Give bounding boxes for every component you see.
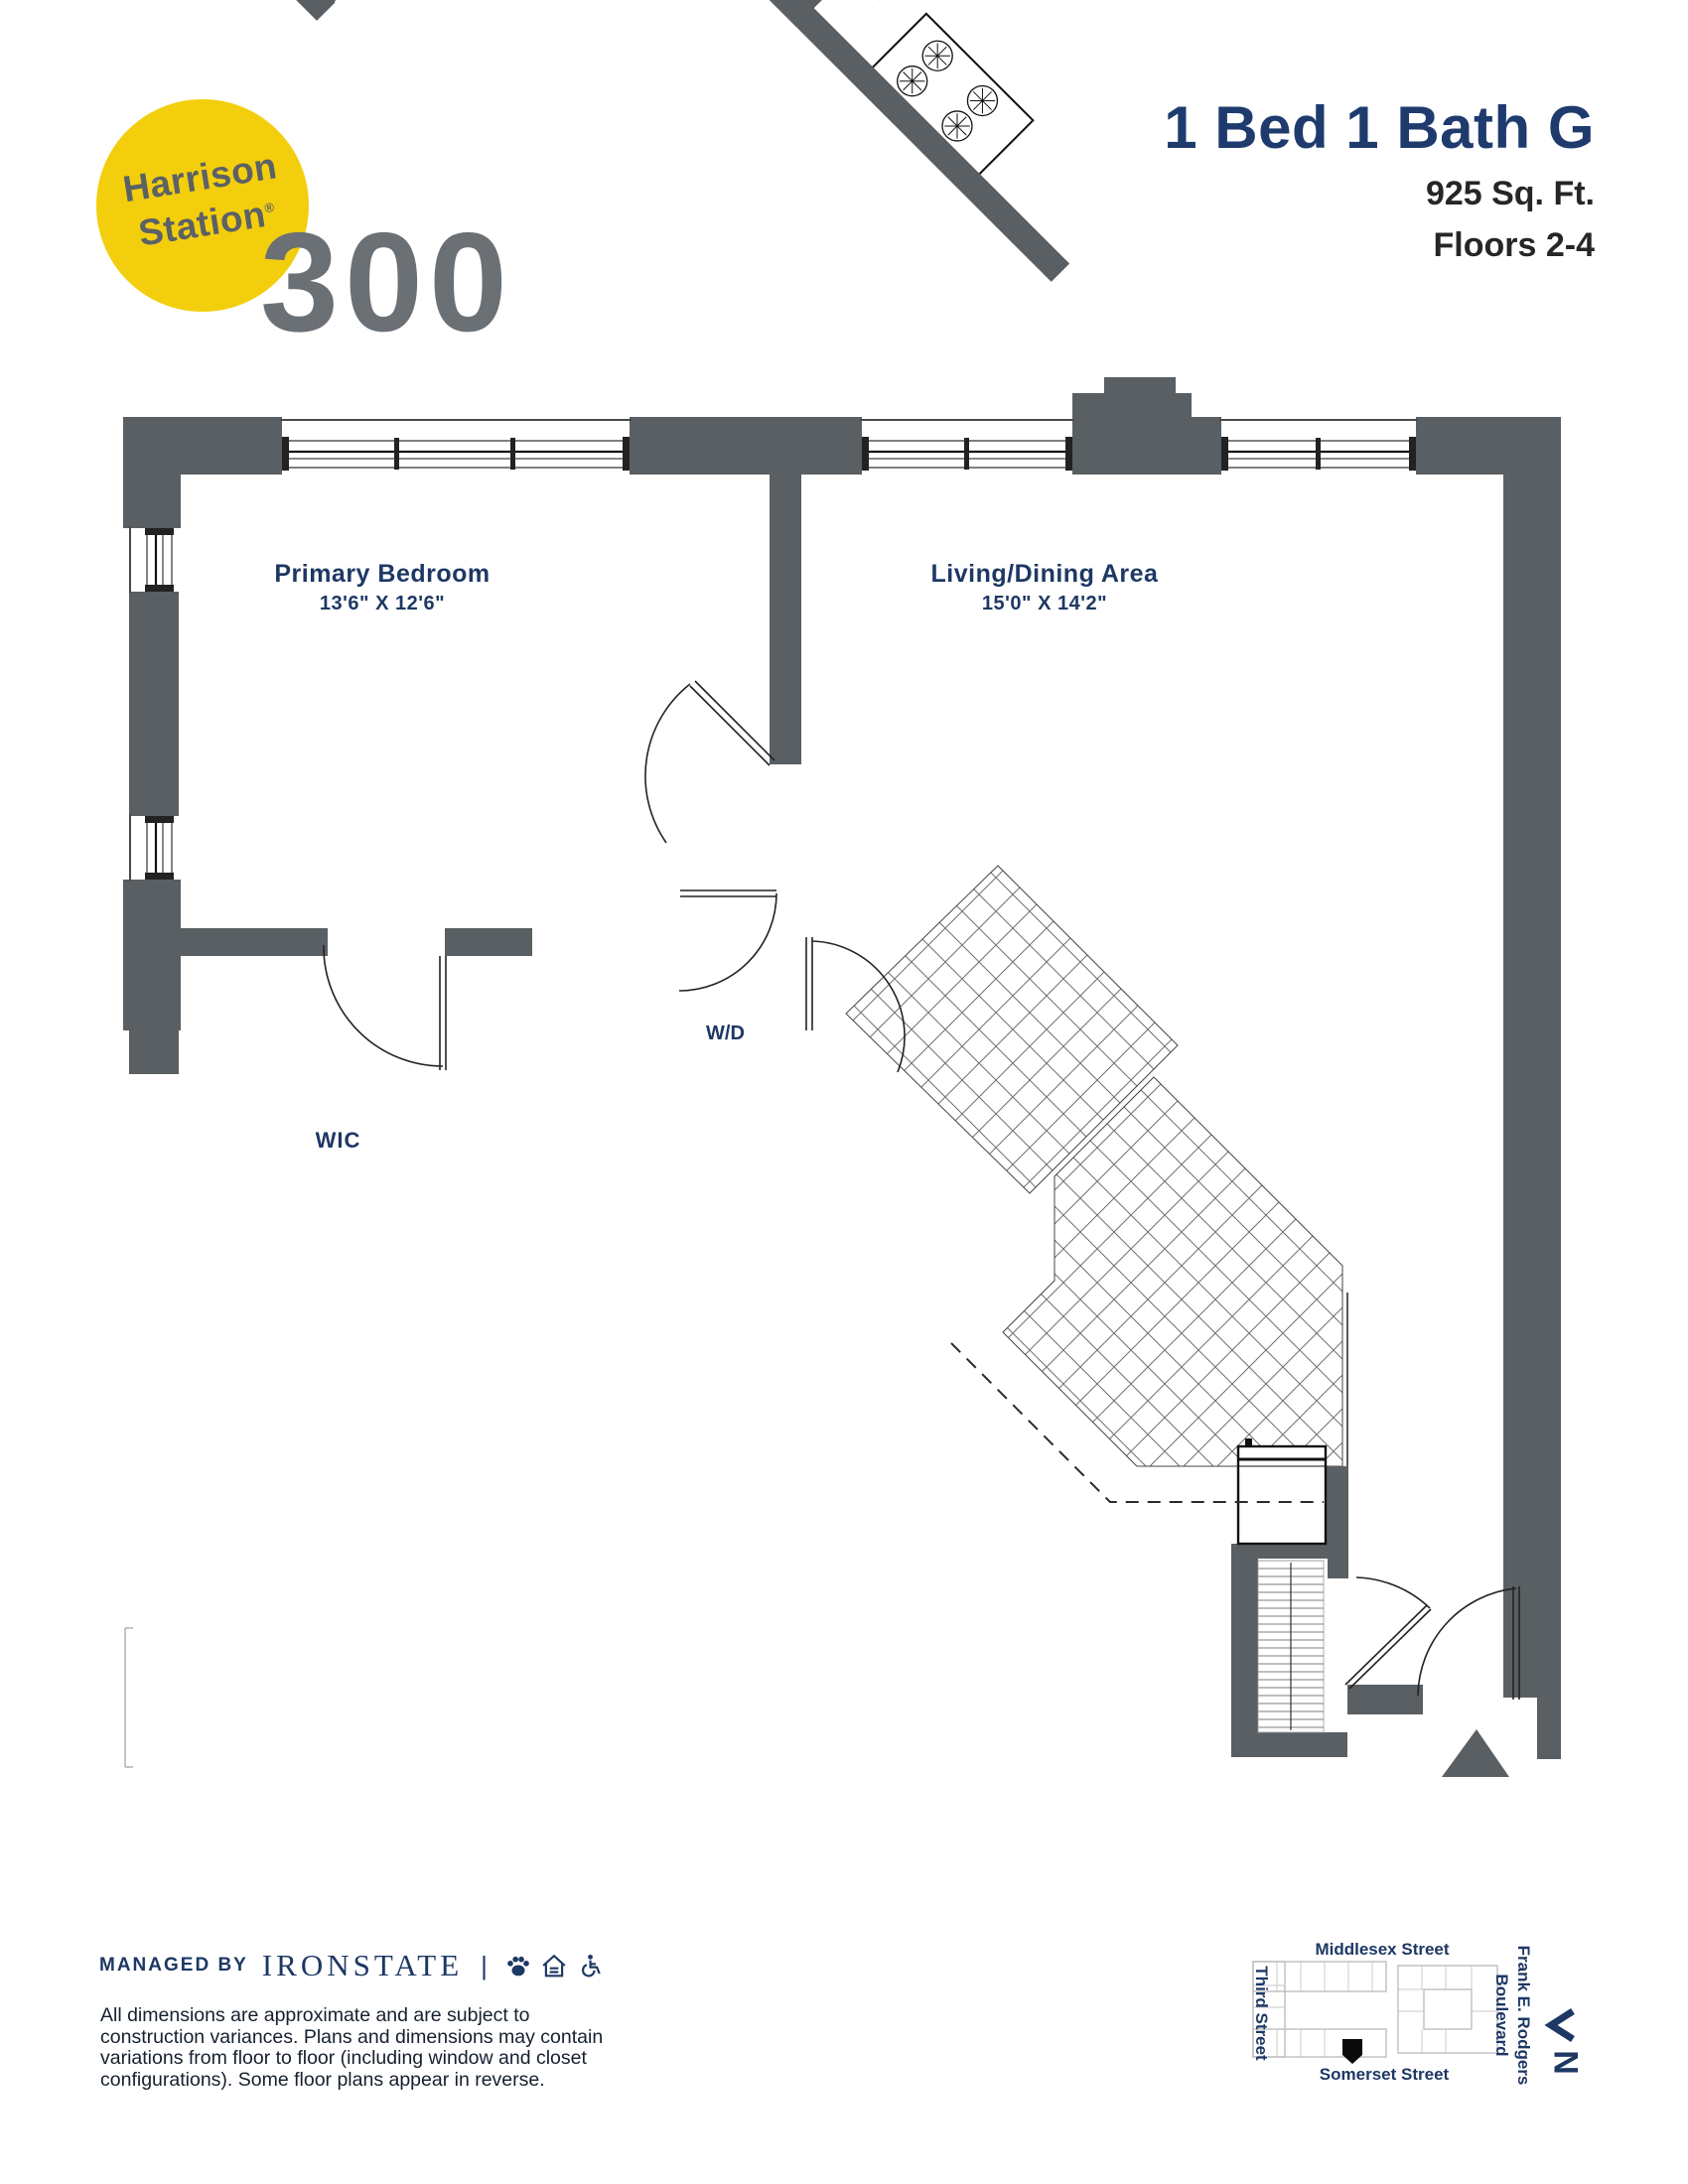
unit-title: 1 Bed 1 Bath G [999,93,1595,162]
refrigerator [1238,1438,1326,1544]
coat-closet-door [1345,1577,1431,1689]
paw-icon [505,1953,531,1979]
footer-divider: | [477,1951,492,1981]
tub-sw-wall [608,0,868,27]
entry-marker-triangle [1442,1729,1509,1777]
wd-label: W/D [683,1023,768,1045]
bedroom-dimensions: 13'6" X 12'6" [184,593,581,615]
logo-building-number: 300 [260,212,513,353]
managed-by-text: MANAGED BY [99,1955,248,1977]
company-name: IRONSTATE [262,1948,463,1983]
map-location-pin [1342,2039,1362,2064]
wic-label: WIC [296,1128,380,1154]
disclaimer-line1: All dimensions are approximate and are s… [100,2005,736,2027]
accessibility-icon [577,1953,603,1979]
living-label: Living/Dining Area [846,560,1243,589]
bedroom-door [645,681,774,843]
top-wall-notch [1072,393,1192,419]
north-arrow-icon [1551,2011,1573,2039]
street-third: Third Street [1251,1934,1271,2093]
floor-plan-drawing [0,0,1688,2184]
unit-floors: Floors 2-4 [999,226,1595,265]
unit-area: 925 Sq. Ft. [999,175,1595,213]
bedroom-living-wall [770,475,801,764]
equal-housing-icon [541,1953,567,1979]
bedroom-label: Primary Bedroom [184,560,581,589]
amenity-icons [505,1953,603,1979]
wic-ne-wall [298,0,565,20]
disclaimer: All dimensions are approximate and are s… [100,2005,736,2091]
wd-closet-door [679,890,776,991]
disclaimer-line3: variations from floor to floor (includin… [100,2048,736,2070]
street-frank-rodgers-line2: Boulevard [1491,1916,1511,2115]
map-buildings [1253,1962,1497,2057]
tiled-floors [846,866,1342,1466]
disclaimer-line4: configurations). Some floor plans appear… [100,2070,736,2092]
wic-sw-wall [53,0,335,21]
adjacent-unit-ghost-wall [125,1628,133,1767]
living-dimensions: 15'0" X 14'2" [846,593,1243,615]
managed-by-row: MANAGED BY IRONSTATE | [99,1948,603,1983]
street-somerset: Somerset Street [1285,2065,1483,2085]
street-frank-rodgers-line1: Frank E. Rodgers [1513,1916,1533,2115]
compass-north-label: N [1546,2045,1585,2081]
street-middlesex: Middlesex Street [1283,1940,1481,1960]
wic-door [324,945,446,1070]
floorplan-sheet: Harrison Station® 300 1 Bed 1 Bath G 925… [0,0,1688,2184]
disclaimer-line2: construction variances. Plans and dimens… [100,2027,736,2049]
